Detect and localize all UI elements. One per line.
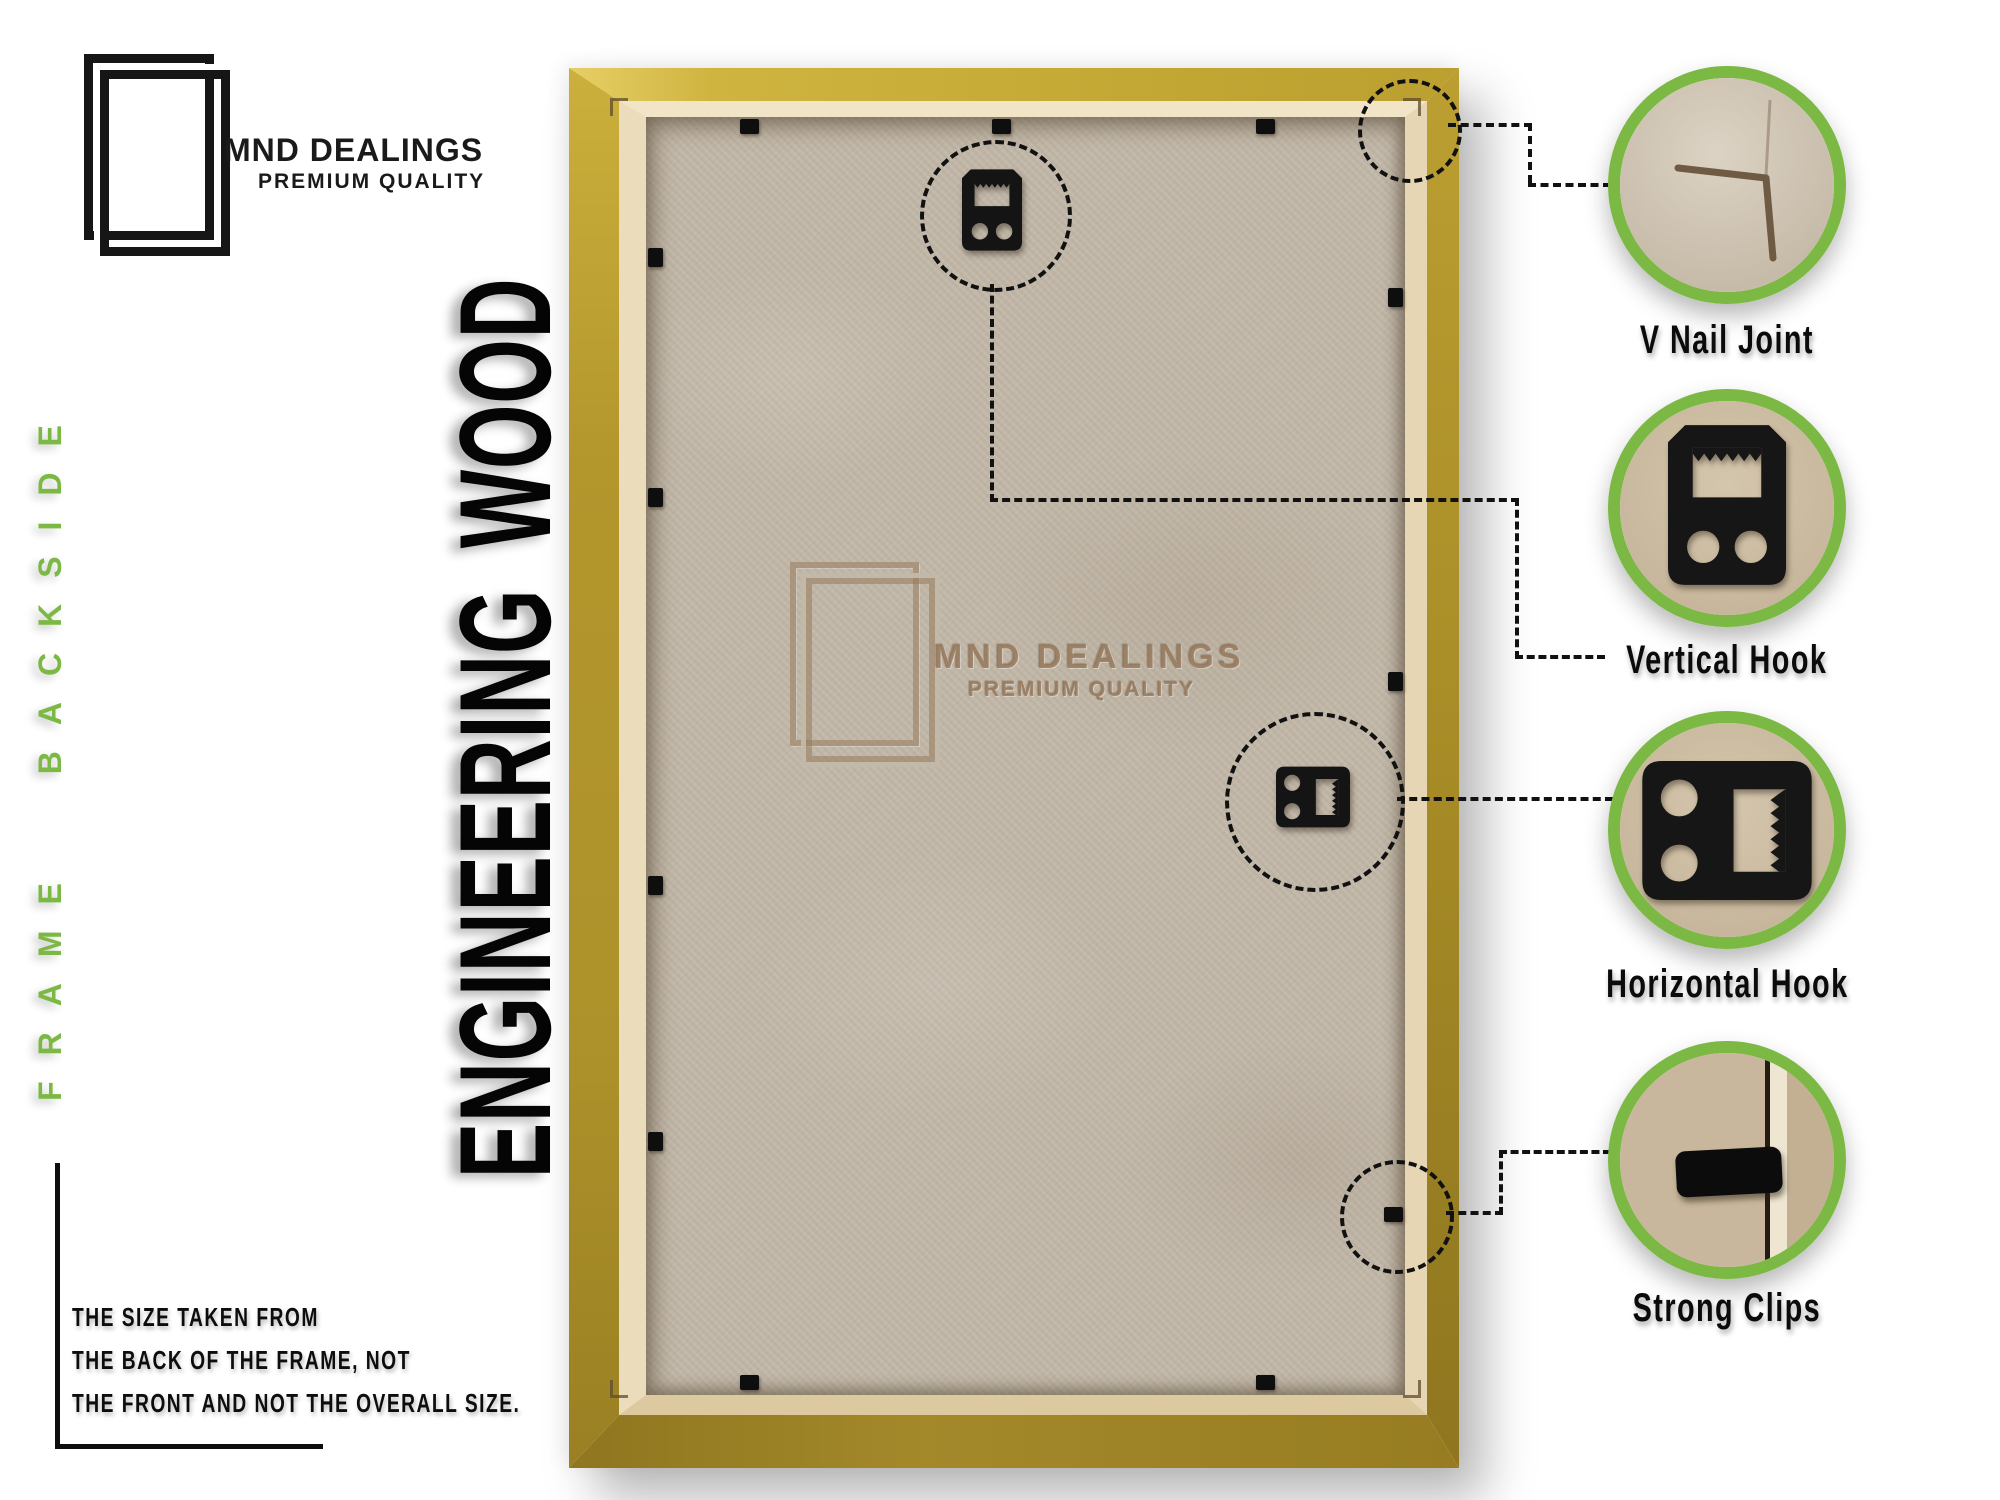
strong-clip-icon: [992, 119, 1011, 134]
watermark-tagline: PREMIUM QUALITY: [968, 678, 1195, 702]
v-nail-groove: [1620, 78, 1834, 292]
callout-photo-vertical-hook: [1608, 389, 1846, 627]
strong-clip-icon: [1256, 1375, 1275, 1390]
v-nail-corner-icon: [610, 1380, 628, 1398]
strong-clip-icon: [740, 1375, 759, 1390]
note-connector-line-horizontal: [55, 1444, 323, 1449]
callout-connector: [990, 498, 1519, 502]
callout-connector: [1397, 797, 1613, 801]
double-picture-frame-icon: [100, 70, 230, 256]
horizontal-hook-icon: [1642, 761, 1812, 900]
page-root: MND DEALINGS PREMIUM QUALITY FRAME BACKS…: [0, 0, 2000, 1500]
double-picture-frame-icon: [806, 578, 935, 762]
callout-photo-v-nail-joint: [1608, 66, 1846, 304]
strong-clip-icon: [648, 1132, 663, 1151]
strong-clip-icon: [1675, 1146, 1783, 1197]
strong-clip-icon: [648, 248, 663, 267]
strong-clip-icon: [1388, 288, 1403, 307]
callout-connector: [1446, 1211, 1503, 1215]
callout-photo-horizontal-hook: [1608, 711, 1846, 949]
callout-ring-horizontal-hook: [1225, 712, 1405, 892]
callout-connector: [990, 284, 994, 502]
callout-label-strong-clips: Strong Clips: [1427, 1286, 2000, 1331]
frame-backside-vertical-label: FRAME BACKSIDE: [34, 399, 66, 1101]
brand-name: MND DEALINGS: [224, 132, 483, 169]
strong-clip-icon: [648, 488, 663, 507]
callout-connector: [1528, 183, 1611, 187]
callout-ring-v-nail-joint: [1358, 79, 1462, 183]
callout-connector: [1515, 498, 1519, 659]
strong-clip-icon: [1256, 119, 1275, 134]
vertical-hook-icon: [1668, 425, 1786, 585]
callout-connector: [1528, 123, 1532, 183]
callout-connector: [1499, 1150, 1503, 1215]
engineering-wood-vertical-label: ENGINEERING WOOD: [440, 278, 570, 1179]
callout-label-vertical-hook: Vertical Hook: [1427, 638, 2000, 683]
callout-connector: [1448, 123, 1532, 127]
brand-tagline: PREMIUM QUALITY: [258, 170, 485, 194]
v-nail-corner-icon: [610, 98, 628, 116]
strong-clip-icon: [740, 119, 759, 134]
note-connector-line-vertical: [55, 1163, 60, 1449]
callout-connector: [1499, 1150, 1611, 1154]
v-nail-corner-icon: [1620, 78, 1834, 292]
callout-label-horizontal-hook: Horizontal Hook: [1427, 962, 2000, 1007]
board-edge-outer: [1787, 1053, 1834, 1267]
callout-photo-strong-clips: [1608, 1041, 1846, 1279]
strong-clip-icon: [1388, 672, 1403, 691]
callout-ring-vertical-hook: [920, 140, 1072, 292]
callout-label-v-nail-joint: V Nail Joint: [1427, 318, 2000, 363]
v-nail-corner-icon: [1403, 1380, 1421, 1398]
watermark-name: MND DEALINGS: [934, 638, 1245, 677]
callout-ring-strong-clips: [1340, 1160, 1454, 1274]
strong-clip-icon: [648, 876, 663, 895]
